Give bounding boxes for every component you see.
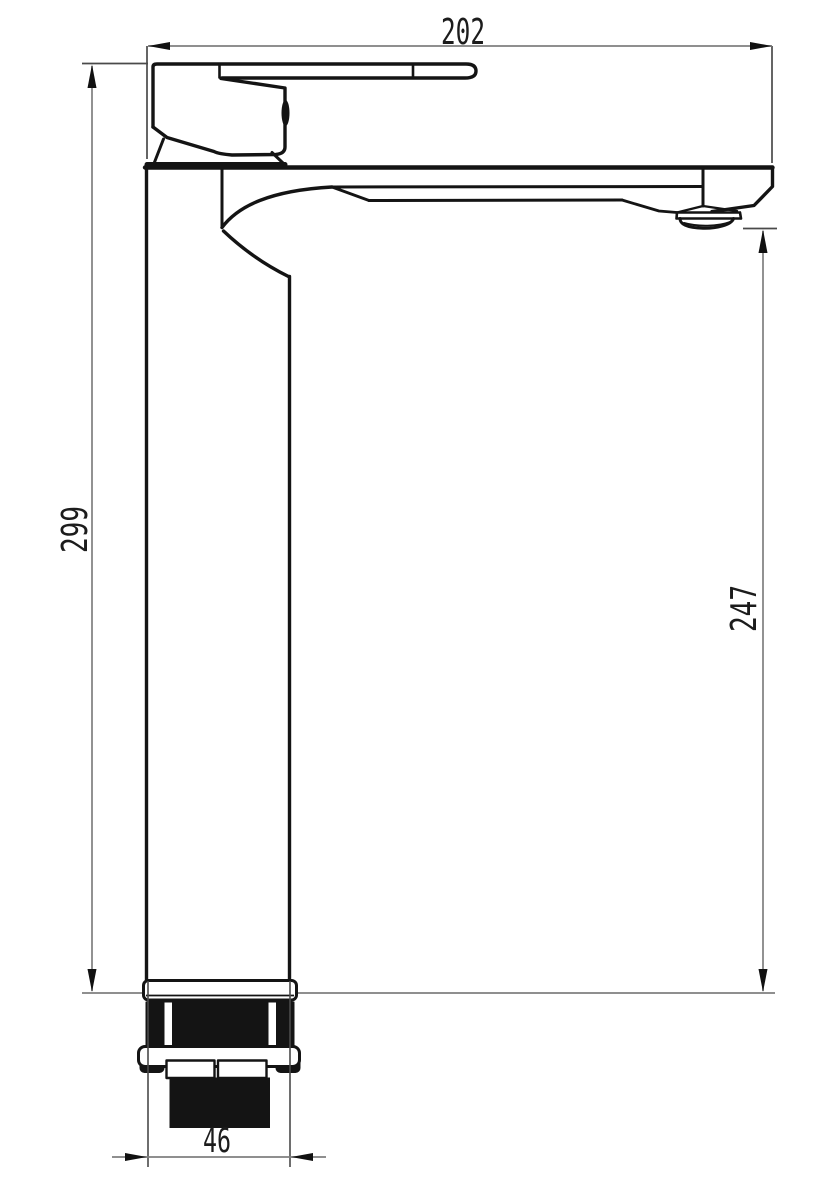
- mount-block-left: [167, 1061, 215, 1079]
- arrowhead-inward-left: [125, 1153, 147, 1161]
- aerator-ring: [677, 213, 742, 219]
- handle-head-top-outline: [153, 64, 476, 127]
- handle-head-body-outline: [153, 79, 285, 156]
- spout-underside-diagonal: [332, 187, 369, 201]
- arrowhead-up: [759, 230, 768, 254]
- arrowhead-down: [88, 969, 97, 992]
- spout-tip-bottom-diagonal: [622, 200, 677, 213]
- spout-underside-lower-line: [369, 200, 622, 201]
- drawing-canvas: 202 299 247 46: [0, 0, 816, 1200]
- base-hardware: [139, 981, 301, 1129]
- gasket-highlight-left: [165, 1003, 173, 1049]
- dimension-outlet-height: 247: [724, 229, 777, 993]
- faucet-outline: [145, 64, 773, 981]
- dimension-label-body-diameter: 46: [203, 1121, 231, 1161]
- handle-lever: [153, 64, 476, 155]
- fillet-upper-curve: [222, 187, 332, 228]
- arrowhead-left: [148, 42, 170, 50]
- arrowhead-right: [750, 42, 772, 50]
- dimension-spout-reach: 202: [147, 12, 772, 163]
- spout-underside-upper-line: [332, 187, 703, 188]
- dimension-overall-height: 299: [55, 64, 148, 993]
- gasket-highlight-right: [269, 1003, 277, 1049]
- spout: [145, 168, 773, 277]
- arrowhead-down: [759, 969, 768, 992]
- fillet-lower-curve: [224, 231, 289, 277]
- arrowhead-up: [88, 65, 97, 89]
- base-flange: [144, 981, 297, 1001]
- aerator: [677, 213, 742, 229]
- spout-tip-right-edge: [712, 168, 773, 212]
- mount-block-right: [218, 1061, 267, 1079]
- dimension-label-overall-height: 299: [55, 506, 96, 553]
- arrowhead-inward-right: [291, 1153, 313, 1161]
- cartridge-screw-detail: [282, 100, 290, 126]
- collar-left-slant: [154, 139, 164, 164]
- technical-drawing-faucet: 202 299 247 46: [0, 0, 816, 1200]
- dimension-label-outlet-height: 247: [724, 585, 765, 632]
- dimension-label-spout-reach: 202: [441, 12, 485, 53]
- column-body: [147, 168, 290, 982]
